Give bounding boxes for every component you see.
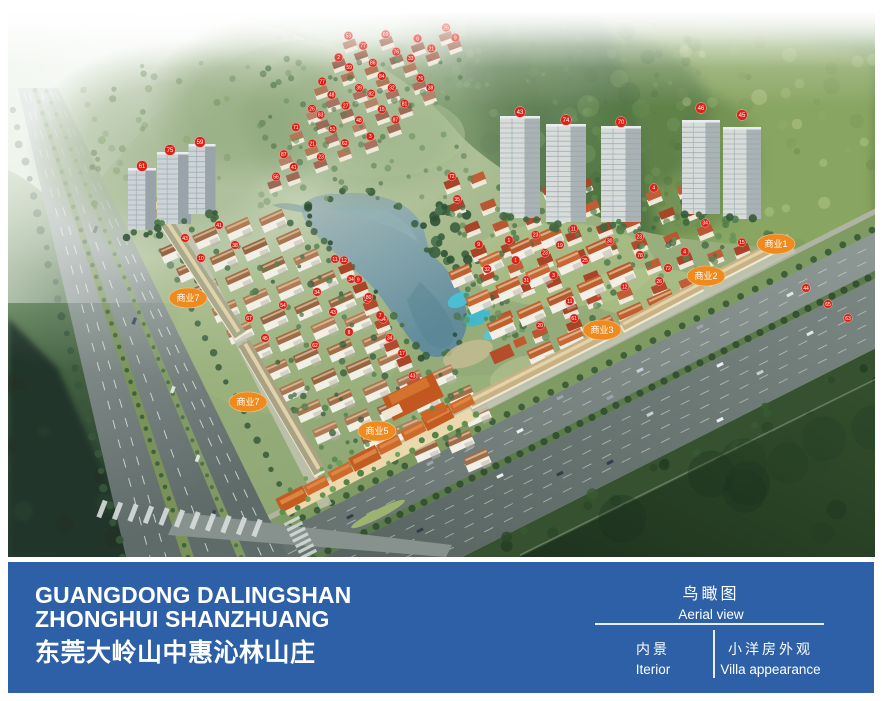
- svg-text:商业5: 商业5: [365, 425, 388, 436]
- svg-text:12: 12: [622, 285, 628, 291]
- svg-text:20: 20: [537, 323, 543, 329]
- svg-text:32: 32: [389, 86, 395, 92]
- svg-text:43: 43: [330, 310, 336, 316]
- svg-text:9: 9: [357, 277, 360, 283]
- svg-text:4: 4: [652, 186, 655, 192]
- svg-text:26: 26: [656, 279, 662, 285]
- svg-text:67: 67: [246, 316, 252, 322]
- svg-text:11: 11: [567, 299, 572, 305]
- svg-text:23: 23: [533, 233, 539, 239]
- svg-text:46: 46: [698, 106, 705, 112]
- svg-text:27: 27: [343, 103, 349, 109]
- svg-text:12: 12: [341, 258, 347, 264]
- svg-text:54: 54: [280, 303, 286, 309]
- svg-text:30: 30: [607, 238, 613, 244]
- svg-text:4: 4: [683, 250, 686, 256]
- svg-text:41: 41: [291, 165, 297, 171]
- svg-text:25: 25: [582, 258, 588, 264]
- svg-text:62: 62: [342, 141, 348, 147]
- svg-text:72: 72: [449, 174, 455, 180]
- svg-text:34: 34: [314, 290, 320, 296]
- svg-text:11: 11: [571, 226, 576, 232]
- svg-text:72: 72: [665, 266, 671, 272]
- svg-text:74: 74: [563, 118, 570, 124]
- svg-text:80: 80: [366, 295, 372, 301]
- svg-text:1: 1: [514, 258, 517, 264]
- svg-text:23: 23: [318, 155, 324, 161]
- svg-text:84: 84: [379, 74, 385, 80]
- svg-text:45: 45: [262, 336, 268, 342]
- svg-text:32: 32: [484, 267, 490, 273]
- svg-text:56: 56: [273, 174, 279, 180]
- svg-text:商业1: 商业1: [764, 238, 787, 249]
- svg-text:26: 26: [309, 107, 315, 113]
- svg-text:48: 48: [356, 118, 362, 124]
- svg-text:19: 19: [557, 243, 563, 249]
- svg-text:31: 31: [524, 278, 530, 284]
- svg-text:38: 38: [232, 243, 238, 249]
- svg-text:59: 59: [197, 140, 204, 146]
- svg-text:82: 82: [368, 91, 374, 97]
- svg-text:62: 62: [312, 343, 318, 349]
- svg-text:75: 75: [167, 148, 174, 154]
- svg-text:商业2: 商业2: [694, 270, 717, 281]
- svg-text:44: 44: [803, 286, 809, 292]
- svg-text:7: 7: [379, 313, 382, 319]
- svg-text:商业3: 商业3: [590, 324, 613, 335]
- svg-text:11: 11: [332, 257, 337, 263]
- svg-text:78: 78: [637, 253, 643, 259]
- svg-text:1: 1: [508, 238, 511, 244]
- svg-text:51: 51: [330, 127, 336, 133]
- svg-text:3: 3: [552, 273, 555, 279]
- svg-text:21: 21: [310, 141, 316, 147]
- svg-text:9: 9: [477, 242, 480, 248]
- svg-text:61: 61: [139, 164, 146, 170]
- svg-text:43: 43: [410, 374, 416, 380]
- svg-text:15: 15: [739, 240, 745, 246]
- svg-text:61: 61: [571, 316, 577, 322]
- svg-text:77: 77: [319, 79, 325, 85]
- svg-text:87: 87: [281, 152, 287, 158]
- svg-text:38: 38: [428, 85, 434, 91]
- svg-text:23: 23: [637, 235, 643, 241]
- svg-text:3: 3: [369, 134, 372, 140]
- svg-text:65: 65: [825, 302, 831, 308]
- svg-text:43: 43: [517, 110, 524, 116]
- svg-text:48: 48: [329, 93, 335, 99]
- svg-text:39: 39: [356, 86, 362, 92]
- svg-text:81: 81: [402, 101, 408, 107]
- svg-text:43: 43: [182, 236, 188, 242]
- svg-text:35: 35: [454, 197, 460, 203]
- svg-text:41: 41: [216, 223, 222, 229]
- svg-text:商业7: 商业7: [236, 396, 259, 407]
- svg-text:23: 23: [542, 251, 548, 257]
- svg-text:45: 45: [739, 113, 746, 119]
- svg-text:10: 10: [198, 256, 204, 262]
- svg-text:15: 15: [379, 107, 385, 113]
- svg-text:76: 76: [418, 76, 424, 82]
- svg-text:34: 34: [348, 277, 354, 283]
- svg-text:34: 34: [702, 221, 708, 227]
- svg-text:63: 63: [845, 316, 851, 322]
- svg-text:商业7: 商业7: [176, 292, 199, 303]
- svg-text:71: 71: [293, 125, 299, 131]
- svg-text:83: 83: [318, 113, 324, 119]
- svg-text:87: 87: [393, 117, 399, 123]
- svg-text:70: 70: [618, 120, 625, 126]
- svg-text:8: 8: [348, 330, 351, 336]
- svg-text:34: 34: [387, 336, 393, 342]
- svg-text:17: 17: [399, 351, 405, 357]
